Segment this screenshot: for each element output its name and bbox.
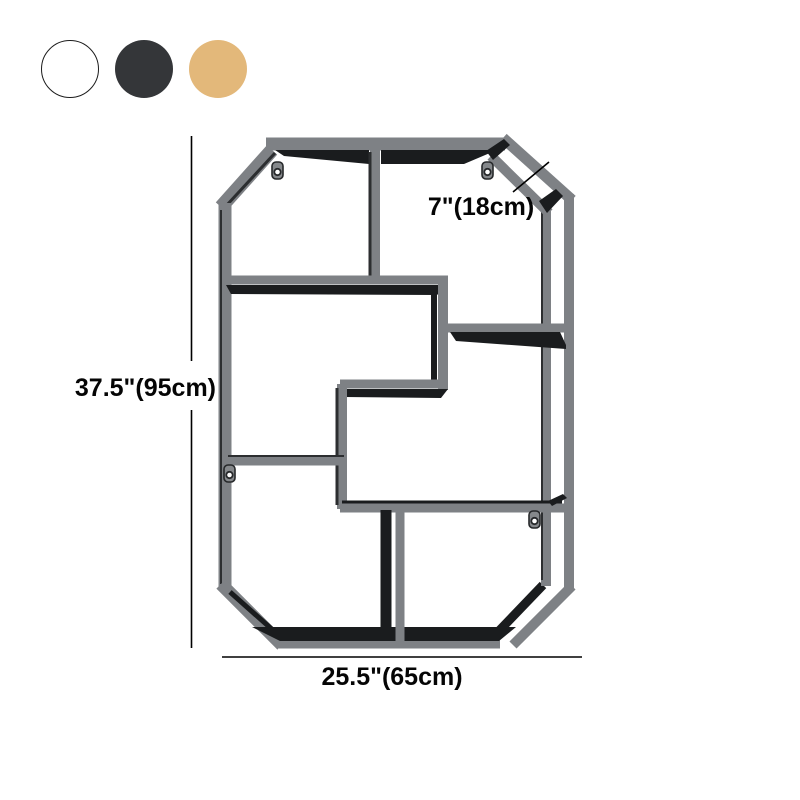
depth-dimension-label: 7"(18cm): [428, 193, 534, 221]
shelf-drawing: 37.5"(95cm) 25.5"(65cm) 7"(18cm): [0, 0, 800, 800]
inner-shelves: [225, 150, 567, 641]
width-dimension-label: 25.5"(65cm): [321, 663, 462, 691]
height-dimension-label: 37.5"(95cm): [75, 374, 216, 402]
mounting-tab-icon: [529, 511, 540, 528]
mounting-tab-icon: [224, 465, 235, 482]
product-image: 37.5"(95cm) 25.5"(65cm) 7"(18cm): [0, 0, 800, 800]
mounting-tab-icon: [482, 162, 493, 179]
mounting-tab-icon: [272, 162, 283, 179]
